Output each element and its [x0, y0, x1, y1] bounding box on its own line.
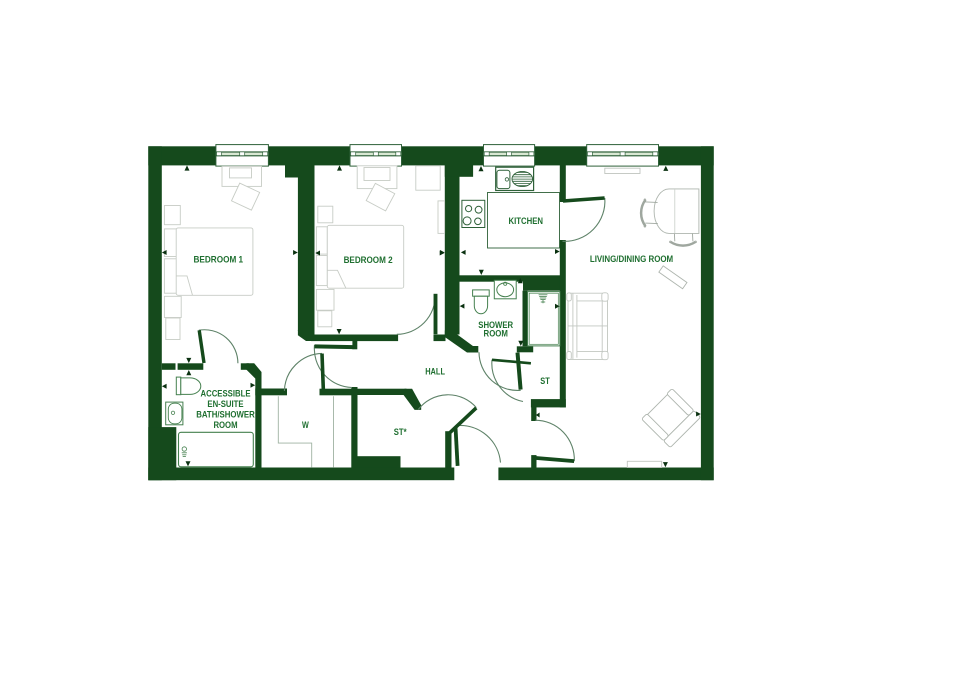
svg-text:BEDROOM 1: BEDROOM 1 [194, 254, 244, 264]
svg-text:ST*: ST* [394, 427, 407, 437]
svg-text:ROOM: ROOM [484, 329, 508, 339]
svg-text:BATH/SHOWER: BATH/SHOWER [196, 410, 255, 420]
svg-text:EN-SUITE: EN-SUITE [207, 399, 243, 409]
svg-text:ROOM: ROOM [213, 420, 237, 430]
svg-text:ST: ST [540, 376, 550, 386]
svg-text:W: W [302, 420, 309, 430]
svg-text:KITCHEN: KITCHEN [509, 216, 544, 226]
svg-text:BEDROOM 2: BEDROOM 2 [344, 255, 393, 265]
svg-text:ACCESSIBLE: ACCESSIBLE [201, 389, 251, 399]
svg-text:LIVING/DINING ROOM: LIVING/DINING ROOM [590, 254, 673, 264]
svg-text:HALL: HALL [425, 366, 445, 376]
